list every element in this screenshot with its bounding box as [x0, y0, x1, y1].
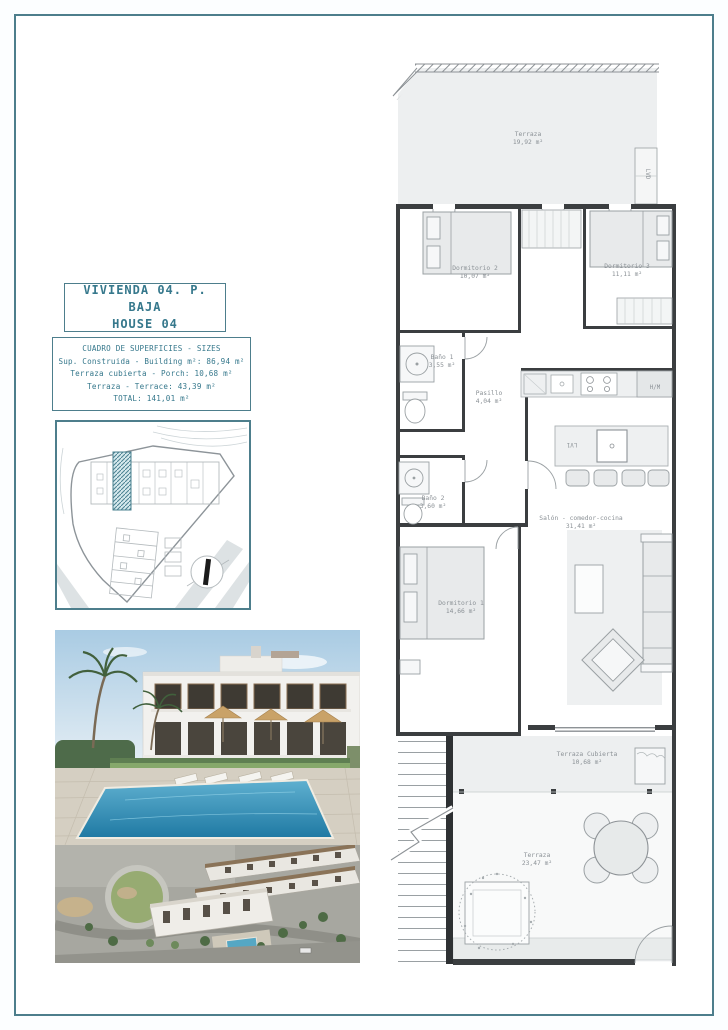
room-area: 10,68 m² — [572, 759, 602, 766]
room-area: 23,47 m² — [522, 860, 552, 867]
wardrobe — [522, 210, 581, 248]
bathroom-fixtures — [399, 462, 429, 524]
dishwasher-label: LV1 — [566, 441, 577, 447]
kitchen-counter: H/M — [521, 371, 672, 397]
room-area: 4,04 m² — [476, 398, 503, 405]
tree-planter — [459, 873, 535, 950]
plan-sheet: VIVIENDA 04. P. BAJA HOUSE 04 CUADRO DE … — [0, 0, 728, 1030]
exterior-render-photo — [55, 630, 360, 845]
car — [300, 948, 311, 953]
room-area: 3,55 m² — [429, 362, 456, 369]
pool — [77, 780, 333, 838]
highlighted-unit — [113, 452, 131, 510]
aerial-render-photo — [55, 845, 360, 963]
bed — [590, 211, 672, 267]
sofa — [641, 534, 672, 672]
site-plan — [55, 420, 251, 610]
kitchen-island: LV1 — [555, 426, 669, 486]
room-area: 11,11 m² — [612, 271, 642, 278]
room-label: Baño 1 — [431, 354, 454, 361]
room-area: 14,66 m² — [446, 608, 476, 615]
room-label: Terraza — [524, 852, 551, 859]
living-room-furniture — [567, 530, 672, 705]
cooktop-icon — [581, 373, 617, 395]
room-area: 19,92 m² — [513, 139, 543, 146]
floor-plan: LVD — [385, 60, 685, 972]
wardrobe — [617, 298, 672, 324]
oven-column-label: H/M — [650, 385, 661, 391]
sand-patch — [57, 897, 93, 917]
room-area: 31,41 m² — [566, 523, 596, 530]
room-label: Baño 2 — [422, 495, 445, 502]
page-title: VIVIENDA 04. P. BAJA — [65, 282, 225, 316]
surface-row: Terraza cubierta - Porch: 10,68 m² — [53, 368, 250, 381]
room-label: Salón - comedor-cocina — [539, 514, 623, 522]
surface-row: Terraza - Terrace: 43,39 m² — [53, 381, 250, 394]
bar-stools — [566, 470, 669, 486]
room-label: Pasillo — [476, 390, 503, 397]
sliding-door — [555, 727, 655, 732]
laundry-label: LVD — [644, 169, 650, 180]
room-label: Dormitorio 2 — [452, 265, 498, 272]
laundry-closet: LVD — [635, 148, 657, 204]
stairs — [391, 736, 453, 962]
room-label: Dormitorio 3 — [604, 263, 650, 270]
room-label: Terraza Cubierta — [557, 751, 618, 758]
surface-row: Sup. Construida - Building m²: 86,94 m² — [53, 356, 250, 369]
coffee-table — [575, 565, 603, 613]
title-box: VIVIENDA 04. P. BAJA HOUSE 04 — [64, 283, 226, 332]
room-area: 10,07 m² — [460, 273, 490, 280]
room-area: 3,60 m² — [420, 503, 447, 510]
room-label: Dormitorio 1 — [438, 600, 484, 607]
room-label: Terraza — [515, 131, 542, 138]
page-subtitle: HOUSE 04 — [112, 316, 178, 333]
outdoor-dining-set — [584, 813, 658, 883]
site-plan-drawing — [57, 422, 249, 608]
bathroom-fixtures — [400, 346, 434, 423]
surface-row: TOTAL: 141,01 m² — [53, 393, 250, 406]
porch-table — [635, 748, 665, 784]
surface-table: CUADRO DE SUPERFICIES - SIZES Sup. Const… — [52, 337, 251, 411]
surface-table-header: CUADRO DE SUPERFICIES - SIZES — [53, 343, 250, 356]
